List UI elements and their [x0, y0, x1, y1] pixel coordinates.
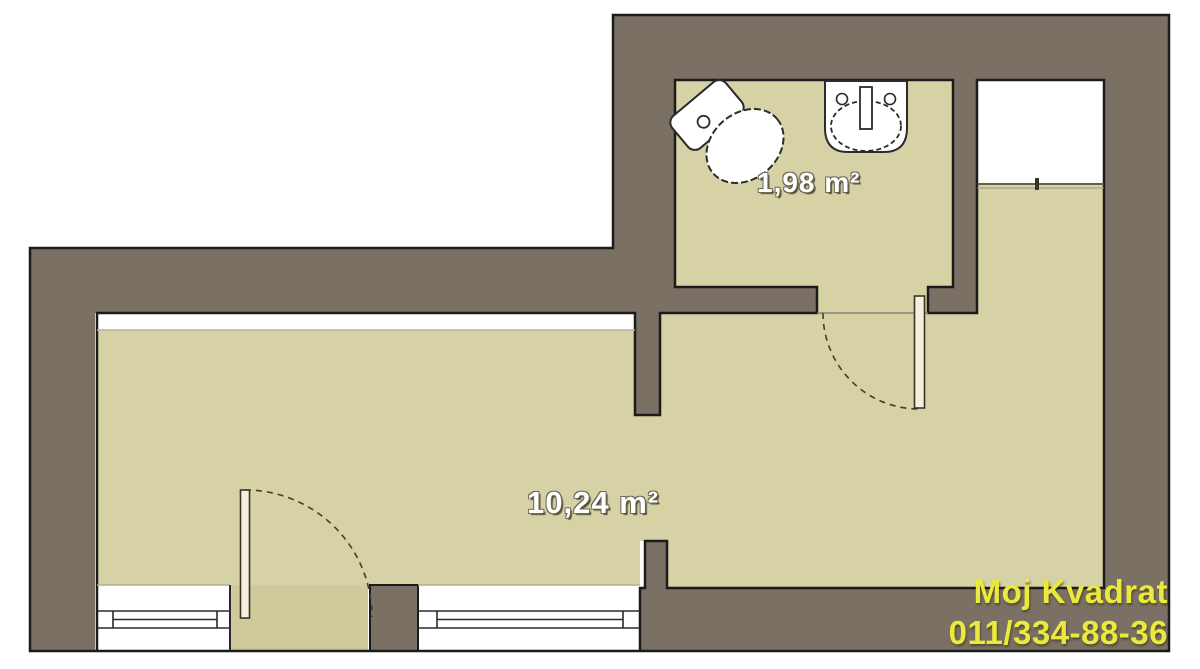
wall-pier: [370, 585, 418, 651]
bathroom-area-label: 1,98 m²: [757, 167, 861, 199]
watermark-name: Moj Kvadrat: [949, 571, 1168, 612]
watermark: Moj Kvadrat 011/334-88-36: [949, 571, 1168, 654]
entry-door-leaf: [241, 490, 250, 618]
sink-icon: [825, 81, 907, 152]
watermark-phone: 011/334-88-36: [949, 612, 1168, 653]
window-niche: [977, 80, 1104, 183]
bathroom-door-leaf: [915, 296, 925, 408]
window-left-band: [95, 585, 230, 651]
top-wall-strip: [97, 313, 635, 330]
main-room-area-label: 10,24 m²: [527, 485, 659, 521]
floor-plan: 1,98 m² 10,24 m² Moj Kvadrat 011/334-88-…: [0, 0, 1200, 669]
floor-plan-drawing: [0, 0, 1200, 669]
window-right-band: [418, 585, 640, 651]
